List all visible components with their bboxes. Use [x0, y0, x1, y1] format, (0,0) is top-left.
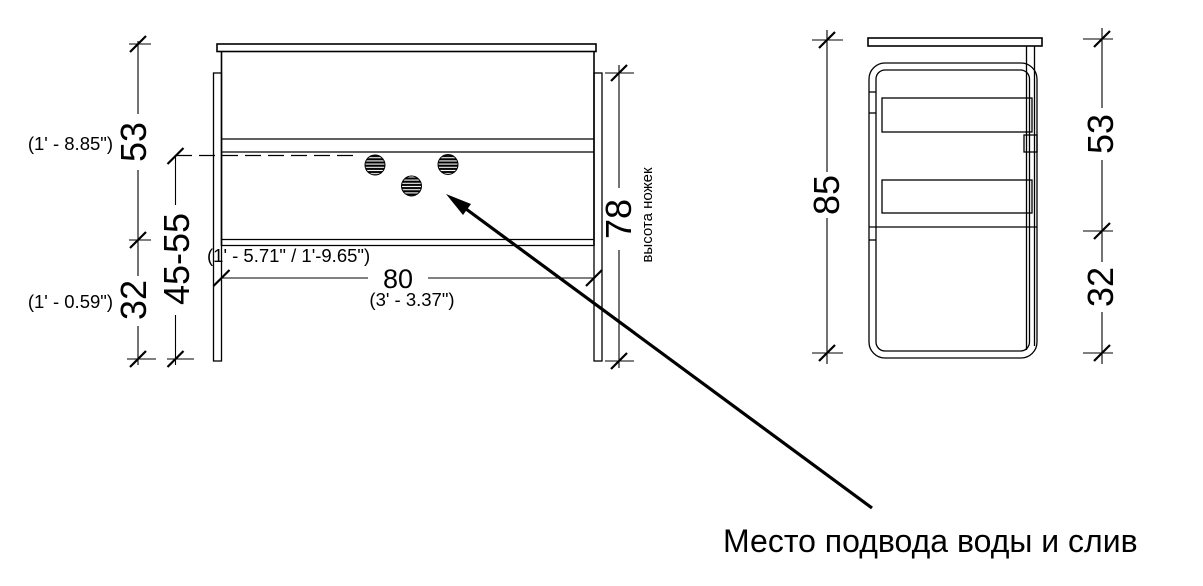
side-dim-53-label: 53: [1080, 114, 1121, 154]
water-holes: [365, 155, 458, 197]
front-countertop: [217, 44, 596, 52]
dimension-53-32: 53 32 (1' - 8.85") (1' - 0.59"): [28, 36, 156, 367]
dim-32-label: 32: [113, 280, 154, 320]
water-hole-left: [365, 155, 385, 175]
dim-45-55-imperial-label: (1' - 5.71" / 1'-9.65"): [207, 245, 370, 266]
front-view-dimensions: 53 32 (1' - 8.85") (1' - 0.59") 45-55 80…: [28, 36, 656, 369]
water-hole-center: [402, 176, 422, 196]
callout-arrow-line: [462, 206, 872, 508]
dim-32-imperial-label: (1' - 0.59"): [28, 291, 113, 312]
dimension-78: 78 высота ножек: [598, 65, 656, 369]
dim-78-label: 78: [598, 199, 639, 239]
dimension-85: 85: [806, 30, 847, 364]
furniture-drawing-svg: 53 32 (1' - 8.85") (1' - 0.59") 45-55 80…: [0, 0, 1203, 586]
dim-53-label: 53: [113, 122, 154, 162]
technical-drawing-canvas: 53 32 (1' - 8.85") (1' - 0.59") 45-55 80…: [0, 0, 1203, 586]
dim-45-55-label: 45-55: [156, 213, 197, 305]
dim-85-label: 85: [806, 175, 847, 215]
dim-53-imperial-label: (1' - 8.85"): [28, 133, 113, 154]
dim-80-imperial-label: (3' - 3.37"): [369, 289, 454, 310]
callout-label: Место подвода воды и слив: [723, 523, 1138, 559]
side-countertop: [868, 38, 1042, 46]
dimension-80: 80 (1' - 5.71" / 1'-9.65") (3' - 3.37"): [207, 245, 602, 310]
front-view: [176, 44, 602, 361]
front-left-leg: [214, 73, 222, 361]
dimension-side-53-32: 53 32: [1080, 28, 1121, 364]
water-hole-right: [438, 155, 458, 175]
leg-height-note: высота ножек: [639, 167, 656, 262]
side-frame-outer-tube: [869, 63, 1037, 358]
side-dim-32-label: 32: [1080, 267, 1121, 307]
side-drawer-lower: [882, 180, 1032, 213]
side-drawer-upper: [882, 98, 1032, 132]
side-frame-inner-tube: [876, 70, 1030, 351]
dimension-45-55: 45-55: [156, 148, 197, 367]
side-view-dimensions: 85 53 32: [806, 28, 1121, 364]
side-view: [868, 38, 1042, 358]
